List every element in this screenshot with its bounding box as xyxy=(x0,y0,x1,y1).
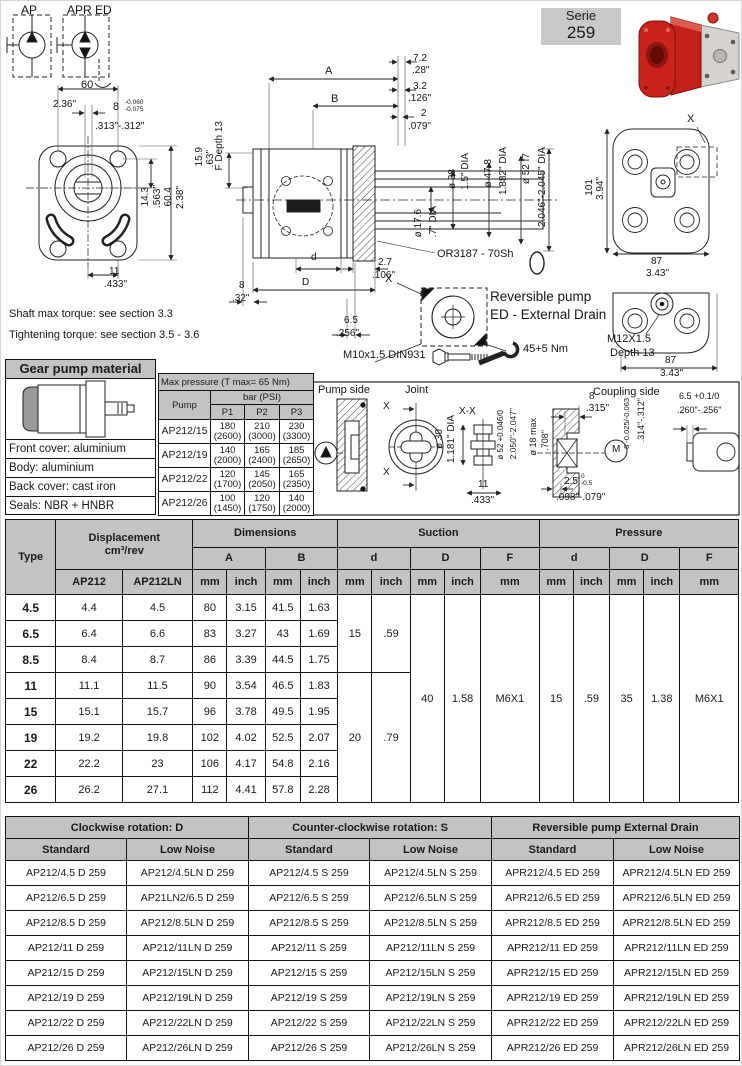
dim-cell: 1.75 xyxy=(300,647,337,673)
pressure-col-p1: P1 xyxy=(211,405,245,420)
dim-cell: 35 xyxy=(609,595,643,803)
pump-material-drawing xyxy=(6,379,155,439)
dim-cell: 1.63 xyxy=(300,595,337,621)
rotation-row: AP212/6.5 D 259AP21LN2/6.5 D 259AP212/6.… xyxy=(6,886,740,911)
dim-cell: 4.5 xyxy=(6,595,56,621)
pressure-row: AP212/15180 (2600)210 (3000)230 (3300) xyxy=(159,420,314,444)
pressure-col-p2: P2 xyxy=(245,405,280,420)
rotation-row: AP212/8.5 D 259AP212/8.5LN D 259AP212/8.… xyxy=(6,911,740,936)
col-pressure-f: F xyxy=(680,548,739,570)
dim-label: Tightening torque: see section 3.5 - 3.6 xyxy=(9,330,199,342)
dim-label: 8 -0.025/-0.063 xyxy=(623,398,631,449)
group-counter-clockwise: Counter-clockwise rotation: S xyxy=(249,817,492,839)
dim-cell: 44.5 xyxy=(265,647,300,673)
part-number-cell: AP212/19LN D 259 xyxy=(127,986,249,1011)
serie-label: Serie xyxy=(541,8,621,24)
dim-cell: 26.2 xyxy=(56,777,122,803)
part-number-cell: AP212/26 S 259 xyxy=(249,1036,370,1061)
part-number-cell: AP212/19 D 259 xyxy=(6,986,127,1011)
dim-label: 3.94" xyxy=(596,177,607,200)
dim-label: .079" xyxy=(408,122,431,133)
dim-label: F Depth 13 xyxy=(215,121,226,170)
pressure-cell-p2: 120 (1750) xyxy=(245,492,280,516)
dim-cell: 2.28 xyxy=(300,777,337,803)
unit-mm: mm xyxy=(410,570,444,595)
material-back-cover: Back cover: cast iron xyxy=(6,477,155,496)
pressure-cell-p1: 180 (2600) xyxy=(211,420,245,444)
pressure-cell-pump: AP212/15 xyxy=(159,420,211,444)
dim-cell: 6.4 xyxy=(56,621,122,647)
dim-cell: 40 xyxy=(410,595,444,803)
dim-label: 3.43" xyxy=(646,269,669,280)
dim-label: ø 38 xyxy=(448,169,459,189)
serie-number: 259 xyxy=(541,24,621,42)
part-number-cell: APR212/15 ED 259 xyxy=(492,961,614,986)
dim-cell: 106 xyxy=(193,751,227,777)
col-pressure-dd: D xyxy=(609,548,679,570)
dim-cell: 43 xyxy=(265,621,300,647)
pressure-cell-p2: 165 (2400) xyxy=(245,444,280,468)
dim-cell: 4.4 xyxy=(56,595,122,621)
dim-label: 1.5" DIA xyxy=(461,153,472,190)
rotation-row: AP212/19 D 259AP212/19LN D 259AP212/19 S… xyxy=(6,986,740,1011)
pressure-cell-p2: 210 (3000) xyxy=(245,420,280,444)
serie-badge: Serie 259 xyxy=(541,8,621,45)
pressure-cell-p3: 140 (2000) xyxy=(280,492,314,516)
pressure-cell-p1: 120 (1700) xyxy=(211,468,245,492)
dim-cell: 23 xyxy=(122,751,192,777)
pressure-cell-pump: AP212/19 xyxy=(159,444,211,468)
dim-cell: 3.39 xyxy=(227,647,265,673)
dim-cell: 6.5 xyxy=(6,621,56,647)
col-suction-f: F xyxy=(481,548,539,570)
dim-label: Shaft max torque: see section 3.3 xyxy=(9,309,173,321)
col-suction-d: d xyxy=(338,548,410,570)
dim-label: Pump side xyxy=(318,385,370,397)
ordering-table: Clockwise rotation: D Counter-clockwise … xyxy=(5,816,740,1061)
dim-cell: 4.5 xyxy=(122,595,192,621)
dim-cell: 11.1 xyxy=(56,673,122,699)
dim-cell: 102 xyxy=(193,725,227,751)
pressure-cell-p1: 140 (2000) xyxy=(211,444,245,468)
sub-low-noise: Low Noise xyxy=(614,839,740,861)
dim-label: 8 xyxy=(113,102,119,114)
unit-inch: inch xyxy=(444,570,480,595)
unit-mm: mm xyxy=(338,570,372,595)
material-front-cover: Front cover: aluminium xyxy=(6,439,155,458)
sub-low-noise: Low Noise xyxy=(370,839,492,861)
dim-cell: 2.16 xyxy=(300,751,337,777)
dim-cell: 8.7 xyxy=(122,647,192,673)
dim-label: X-X xyxy=(459,407,476,418)
part-number-cell: AP212/6.5 S 259 xyxy=(249,886,370,911)
part-number-cell: APR212/6.5 ED 259 xyxy=(492,886,614,911)
dim-label: ø 47.8 xyxy=(484,159,495,187)
dim-cell: 27.1 xyxy=(122,777,192,803)
dim-cell: 1.83 xyxy=(300,673,337,699)
pressure-row: AP212/19140 (2000)165 (2400)185 (2650) xyxy=(159,444,314,468)
dim-label: 7.2 xyxy=(413,54,427,65)
part-number-cell: AP212/26LN D 259 xyxy=(127,1036,249,1061)
part-number-cell: APR212/8.5 ED 259 xyxy=(492,911,614,936)
material-box-title: Gear pump material xyxy=(6,360,155,379)
col-ap212: AP212 xyxy=(56,570,122,595)
dim-label: .313"-.312" xyxy=(95,122,144,133)
dim-cell: 112 xyxy=(193,777,227,803)
dim-cell: 15.7 xyxy=(122,699,192,725)
pressure-cell-pump: AP212/26 xyxy=(159,492,211,516)
part-number-cell: APR212/19LN ED 259 xyxy=(614,986,740,1011)
part-number-cell: AP212/19 S 259 xyxy=(249,986,370,1011)
group-reversible: Reversible pump External Drain xyxy=(492,817,740,839)
dim-cell: 19.2 xyxy=(56,725,122,751)
dim-label: 45+5 Nm xyxy=(523,344,568,356)
dim-cell: 86 xyxy=(193,647,227,673)
part-number-cell: AP21LN2/6.5 D 259 xyxy=(127,886,249,911)
dim-label: .7" DIA xyxy=(429,206,440,237)
max-pressure-table: Max pressure (T max= 65 Nm) Pump bar (PS… xyxy=(158,373,314,516)
dim-label: 3.43" xyxy=(660,369,683,380)
dim-cell: 1.95 xyxy=(300,699,337,725)
dim-cell: 15 xyxy=(338,595,372,673)
dimensions-table: Type Displacement cm³/rev Dimensions Suc… xyxy=(5,519,739,803)
col-b: B xyxy=(265,548,338,570)
dim-label: ø 18 max xyxy=(529,418,539,456)
dim-cell: 15 xyxy=(6,699,56,725)
dim-label: 60 xyxy=(81,80,93,92)
col-pressure: Pressure xyxy=(539,520,738,548)
dim-cell: 11 xyxy=(6,673,56,699)
dim-label: D xyxy=(302,278,309,289)
dim-label: 2.7 xyxy=(378,258,392,269)
dim-label: X xyxy=(385,274,392,286)
pressure-cell-p3: 230 (3300) xyxy=(280,420,314,444)
part-number-cell: AP212/15LN D 259 xyxy=(127,961,249,986)
dim-cell: 57.8 xyxy=(265,777,300,803)
dim-cell: 2.07 xyxy=(300,725,337,751)
dim-cell: M6X1 xyxy=(481,595,539,803)
group-clockwise: Clockwise rotation: D xyxy=(6,817,249,839)
unit-inch: inch xyxy=(300,570,337,595)
unit-mm: mm xyxy=(539,570,573,595)
dim-label: 14.3 xyxy=(141,187,152,206)
dim-label: B xyxy=(331,94,338,106)
part-number-cell: AP212/11 S 259 xyxy=(249,936,370,961)
pressure-cell-p1: 100 (1450) xyxy=(211,492,245,516)
unit-inch: inch xyxy=(644,570,680,595)
dim-label: 6.5 +0.1/0 xyxy=(679,392,719,402)
dim-label: .32" xyxy=(232,294,249,305)
dim-label: .315" xyxy=(586,404,609,415)
part-number-cell: AP212/6.5LN S 259 xyxy=(370,886,492,911)
dim-row: 4.54.44.5803.1541.51.6315.59401.58M6X115… xyxy=(6,595,739,621)
dim-label: Joint xyxy=(405,385,428,397)
part-number-cell: APR212/6.5LN ED 259 xyxy=(614,886,740,911)
part-number-cell: APR212/8.5LN ED 259 xyxy=(614,911,740,936)
dim-label: ED - External Drain xyxy=(490,308,606,323)
rotation-row: AP212/26 D 259AP212/26LN D 259AP212/26 S… xyxy=(6,1036,740,1061)
dim-label: ø 52 +0.046/0 xyxy=(497,410,506,460)
sub-standard: Standard xyxy=(249,839,370,861)
dim-label: 60.4 xyxy=(164,187,175,206)
part-number-cell: AP212/6.5 D 259 xyxy=(6,886,127,911)
material-body: Body: aluminium xyxy=(6,458,155,477)
pressure-cell-p2: 145 (2050) xyxy=(245,468,280,492)
dim-cell: 80 xyxy=(193,595,227,621)
unit-mm: mm xyxy=(609,570,643,595)
rotation-row: AP212/15 D 259AP212/15LN D 259AP212/15 S… xyxy=(6,961,740,986)
dim-cell: 8.5 xyxy=(6,647,56,673)
part-number-cell: APR212/26LN ED 259 xyxy=(614,1036,740,1061)
dim-cell: 3.54 xyxy=(227,673,265,699)
dim-label: 8 xyxy=(239,281,245,292)
part-number-cell: AP212/19LN S 259 xyxy=(370,986,492,1011)
dim-cell: 3.27 xyxy=(227,621,265,647)
part-number-cell: AP212/22LN D 259 xyxy=(127,1011,249,1036)
col-dimensions: Dimensions xyxy=(193,520,338,548)
dim-cell: 15 xyxy=(539,595,573,803)
pressure-col-bar-psi: bar (PSI) xyxy=(211,391,314,405)
dim-label: .256" xyxy=(336,329,359,340)
part-number-cell: APR212/22 ED 259 xyxy=(492,1011,614,1036)
dim-cell: .79 xyxy=(372,673,410,803)
pressure-table-title: Max pressure (T max= 65 Nm) xyxy=(159,374,314,391)
dim-cell: 4.41 xyxy=(227,777,265,803)
dim-label: .433" xyxy=(471,496,494,507)
part-number-cell: AP212/15 S 259 xyxy=(249,961,370,986)
dim-label: OR3187 - 70Sh xyxy=(437,249,513,261)
dim-label: APR ED xyxy=(67,4,112,17)
pressure-col-pump: Pump xyxy=(159,391,211,420)
dim-label: .708" xyxy=(541,430,551,451)
unit-mm: mm xyxy=(481,570,539,595)
part-number-cell: AP212/15LN S 259 xyxy=(370,961,492,986)
dim-label: 11 xyxy=(478,480,488,491)
dim-cell: 3.78 xyxy=(227,699,265,725)
dim-label: 87 xyxy=(665,356,676,367)
dim-cell: 4.17 xyxy=(227,751,265,777)
part-number-cell: AP212/8.5 S 259 xyxy=(249,911,370,936)
dim-cell: 1.58 xyxy=(444,595,480,803)
dim-cell: 11.5 xyxy=(122,673,192,699)
rotation-row: AP212/22 D 259AP212/22LN D 259AP212/22 S… xyxy=(6,1011,740,1036)
dim-cell: 15.1 xyxy=(56,699,122,725)
dim-label: X xyxy=(383,402,390,413)
dim-cell: 1.69 xyxy=(300,621,337,647)
dim-label: .314"-.312" xyxy=(637,398,647,442)
col-ap212ln: AP212LN xyxy=(122,570,192,595)
dim-label: AP xyxy=(21,4,37,17)
dim-label: 2.5 xyxy=(564,477,578,488)
dim-cell: 90 xyxy=(193,673,227,699)
unit-inch: inch xyxy=(573,570,609,595)
part-number-cell: AP212/11LN S 259 xyxy=(370,936,492,961)
dim-cell: 96 xyxy=(193,699,227,725)
dim-cell: 19.8 xyxy=(122,725,192,751)
material-seals: Seals: NBR + HNBR xyxy=(6,496,155,515)
dim-cell: 52.5 xyxy=(265,725,300,751)
dim-label: d xyxy=(311,253,317,264)
part-number-cell: AP212/4.5LN D 259 xyxy=(127,861,249,886)
dim-label: M10x1.5 DIN931 xyxy=(343,350,426,362)
dim-label: 11 xyxy=(109,267,119,278)
part-number-cell: AP212/22LN S 259 xyxy=(370,1011,492,1036)
part-number-cell: AP212/8.5LN D 259 xyxy=(127,911,249,936)
pressure-cell-p3: 165 (2350) xyxy=(280,468,314,492)
dim-label: 2.046"-2.045" DIA xyxy=(538,147,549,227)
part-number-cell: APR212/15LN ED 259 xyxy=(614,961,740,986)
pump-product-image xyxy=(631,3,742,101)
dim-cell: .59 xyxy=(573,595,609,803)
dim-cell: 6.6 xyxy=(122,621,192,647)
dim-label: 2 xyxy=(421,109,427,120)
dim-cell: 3.15 xyxy=(227,595,265,621)
part-number-cell: APR212/4.5LN ED 259 xyxy=(614,861,740,886)
part-number-cell: AP212/8.5 D 259 xyxy=(6,911,127,936)
dim-cell: 1.38 xyxy=(644,595,680,803)
dim-cell: 54.8 xyxy=(265,751,300,777)
part-number-cell: AP212/22 D 259 xyxy=(6,1011,127,1036)
pressure-cell-p3: 185 (2650) xyxy=(280,444,314,468)
part-number-cell: APR212/11 ED 259 xyxy=(492,936,614,961)
rotation-row: AP212/4.5 D 259AP212/4.5LN D 259AP212/4.… xyxy=(6,861,740,886)
unit-mm: mm xyxy=(680,570,739,595)
part-number-cell: AP212/4.5LN S 259 xyxy=(370,861,492,886)
dim-cell: 19 xyxy=(6,725,56,751)
sub-standard: Standard xyxy=(492,839,614,861)
dim-cell: 83 xyxy=(193,621,227,647)
part-number-cell: AP212/22 S 259 xyxy=(249,1011,370,1036)
pressure-col-p3: P3 xyxy=(280,405,314,420)
part-number-cell: AP212/11 D 259 xyxy=(6,936,127,961)
dim-cell: 4.02 xyxy=(227,725,265,751)
dim-cell: M6X1 xyxy=(680,595,739,803)
dim-label: 6.5 xyxy=(344,316,358,327)
dim-label: .126" xyxy=(408,94,431,105)
dim-label: 1.882" DIA xyxy=(499,147,510,195)
pressure-row: AP212/26100 (1450)120 (1750)140 (2000) xyxy=(159,492,314,516)
unit-mm: mm xyxy=(193,570,227,595)
part-number-cell: APR212/26 ED 259 xyxy=(492,1036,614,1061)
col-pressure-d: d xyxy=(539,548,609,570)
dim-label: 2.38" xyxy=(176,186,187,209)
dim-label: 2.36" xyxy=(53,100,76,111)
dim-label: .260"-.256" xyxy=(677,406,721,416)
dim-cell: 49.5 xyxy=(265,699,300,725)
sub-low-noise: Low Noise xyxy=(127,839,249,861)
dim-cell: 20 xyxy=(338,673,372,803)
pressure-row: AP212/22120 (1700)145 (2050)165 (2350) xyxy=(159,468,314,492)
dim-label: M12X1.5 xyxy=(607,334,651,346)
part-number-cell: APR212/22LN ED 259 xyxy=(614,1011,740,1036)
col-suction-dd: D xyxy=(410,548,480,570)
dim-label: 3.2 xyxy=(413,82,427,93)
dim-label: 0 -0.5 xyxy=(581,473,592,487)
col-a: A xyxy=(193,548,265,570)
part-number-cell: AP212/26 D 259 xyxy=(6,1036,127,1061)
part-number-cell: AP212/26LN S 259 xyxy=(370,1036,492,1061)
dim-cell: 22 xyxy=(6,751,56,777)
dim-label: ø 30 xyxy=(435,429,446,449)
sub-standard: Standard xyxy=(6,839,127,861)
part-number-cell: APR212/4.5 ED 259 xyxy=(492,861,614,886)
part-number-cell: AP212/4.5 S 259 xyxy=(249,861,370,886)
dim-label: .28" xyxy=(412,66,429,77)
col-suction: Suction xyxy=(338,520,539,548)
dim-label: Reversible pump xyxy=(490,290,591,305)
dim-cell: 8.4 xyxy=(56,647,122,673)
dim-cell: .59 xyxy=(372,595,410,673)
part-number-cell: APR212/19 ED 259 xyxy=(492,986,614,1011)
part-number-cell: AP212/4.5 D 259 xyxy=(6,861,127,886)
dim-label: X xyxy=(687,114,694,126)
part-number-cell: AP212/8.5LN S 259 xyxy=(370,911,492,936)
col-displacement: Displacement cm³/rev xyxy=(56,520,193,570)
dim-label: 2.050"-2.047" xyxy=(509,408,518,459)
unit-inch: inch xyxy=(227,570,265,595)
dim-label: M xyxy=(612,445,620,456)
dim-cell: 41.5 xyxy=(265,595,300,621)
unit-mm: mm xyxy=(265,570,300,595)
dim-cell: 22.2 xyxy=(56,751,122,777)
dim-cell: 26 xyxy=(6,777,56,803)
dim-label: Depth 13 xyxy=(610,348,655,360)
datasheet-page: APAPR ED602.36"8-0.060 -0.075.313"-.312"… xyxy=(0,0,742,1066)
dim-label: .098"-.079" xyxy=(556,493,605,504)
dim-label: A xyxy=(325,66,332,78)
dim-label: ø 17.6 xyxy=(414,209,425,237)
part-number-cell: AP212/15 D 259 xyxy=(6,961,127,986)
dim-label: X xyxy=(383,468,390,479)
unit-inch: inch xyxy=(372,570,410,595)
part-number-cell: APR212/11LN ED 259 xyxy=(614,936,740,961)
dim-label: 8 xyxy=(589,392,595,403)
pressure-cell-pump: AP212/22 xyxy=(159,468,211,492)
rotation-row: AP212/11 D 259AP212/11LN D 259AP212/11 S… xyxy=(6,936,740,961)
material-box: Gear pump material Front cover: aluminiu… xyxy=(5,359,156,515)
dim-label: ø 52 f7 xyxy=(522,153,533,184)
dim-cell: 46.5 xyxy=(265,673,300,699)
part-number-cell: AP212/11LN D 259 xyxy=(127,936,249,961)
dim-label: -0.060 -0.075 xyxy=(125,99,143,113)
dim-label: .433" xyxy=(104,280,127,291)
dim-label: 1.181" DIA xyxy=(447,415,458,463)
col-type: Type xyxy=(6,520,56,595)
dim-label: 87 xyxy=(651,257,662,268)
